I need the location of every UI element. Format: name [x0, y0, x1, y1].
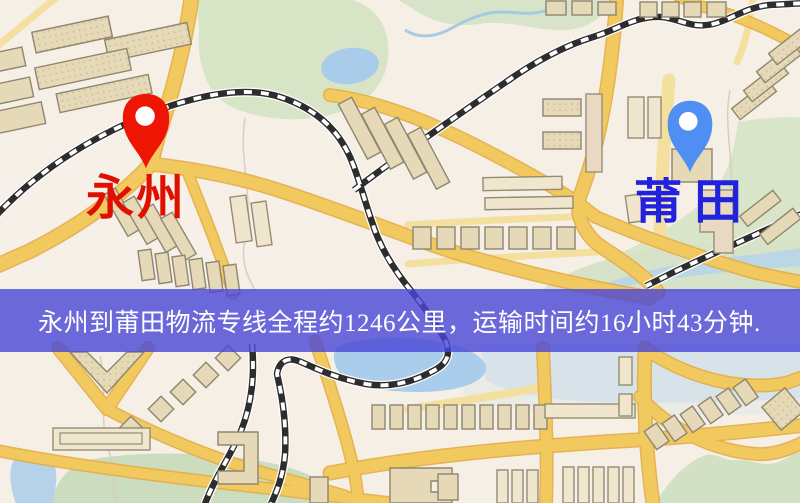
- route-info-banner: 永州到莆田物流专线全程约1246公里，运输时间约16小时43分钟.: [0, 289, 800, 352]
- route-info-text: 永州到莆田物流专线全程约1246公里，运输时间约16小时43分钟.: [38, 303, 761, 339]
- destination-city-label: 莆田: [634, 179, 754, 227]
- origin-pin-hole: [135, 106, 155, 125]
- map-canvas: [0, 0, 800, 503]
- origin-city-label: 永州: [86, 175, 186, 223]
- map-screenshot: 永州 莆田 永州到莆田物流专线全程约1246公里，运输时间约16小时43分钟.: [0, 0, 800, 503]
- destination-pin-shape: [668, 101, 713, 172]
- destination-pin-hole: [679, 112, 698, 131]
- destination-pin-icon[interactable]: [663, 99, 717, 174]
- origin-pin-shape: [123, 94, 169, 168]
- origin-pin-icon[interactable]: [118, 92, 174, 170]
